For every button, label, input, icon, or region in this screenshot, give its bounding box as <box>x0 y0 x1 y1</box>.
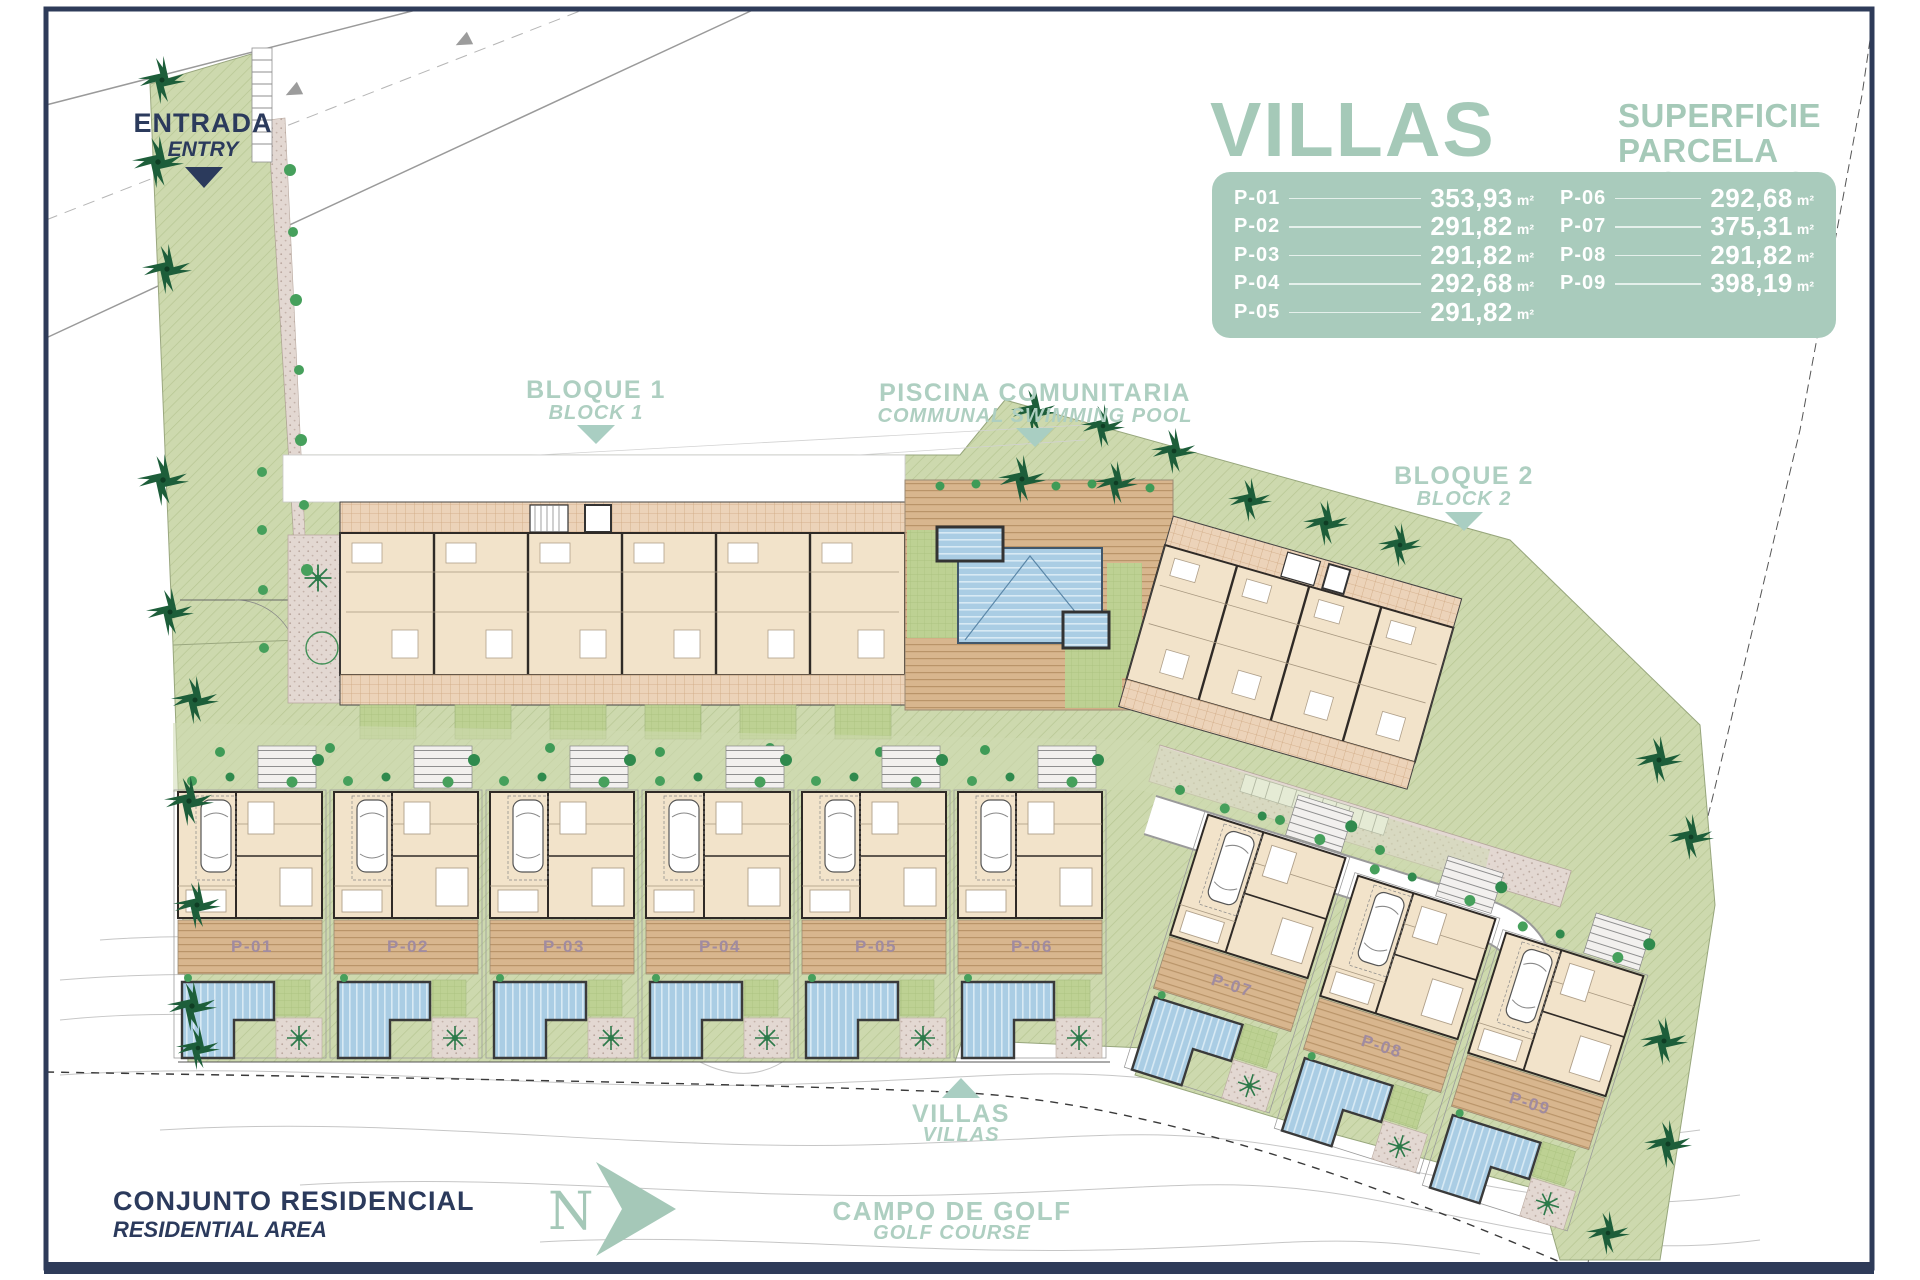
plot-area-row: P-01353,93m² <box>1234 184 1534 213</box>
leader-line <box>1615 255 1701 257</box>
plot-area-unit: m² <box>1797 188 1814 208</box>
plot-areas-col-2: P-06292,68m²P-07375,31m²P-08291,82m²P-09… <box>1560 184 1814 326</box>
plot-area-value: 291,82 <box>1710 240 1793 271</box>
plot-area-value: 353,93 <box>1430 183 1513 214</box>
plot-area-unit: m² <box>1517 302 1534 322</box>
residential-area-label-en: RESIDENTIAL AREA <box>113 1217 475 1242</box>
legend-title: VILLAS <box>1210 92 1496 169</box>
residential-area-label: CONJUNTO RESIDENCIAL RESIDENTIAL AREA <box>113 1186 475 1242</box>
north-arrow-icon <box>596 1162 676 1256</box>
plot-tag: P-03 <box>543 937 585 956</box>
plot-tag: P-01 <box>231 937 273 956</box>
plot-area-value: 291,82 <box>1430 297 1513 328</box>
plot-area-value: 292,68 <box>1430 268 1513 299</box>
small-pool-1 <box>937 527 1003 561</box>
plot-area-unit: m² <box>1797 217 1814 237</box>
block2-label-en: BLOCK 2 <box>1417 488 1512 511</box>
block1-label-es: BLOQUE 1 <box>526 376 666 405</box>
plot-area-row: P-05291,82m² <box>1234 298 1534 327</box>
plot-area-unit: m² <box>1517 274 1534 294</box>
plot-area-row: P-08291,82m² <box>1560 241 1814 270</box>
plot-area-id: P-04 <box>1234 272 1280 295</box>
leader-line <box>1289 198 1421 200</box>
plot-area-row: P-03291,82m² <box>1234 241 1534 270</box>
residential-area-label-es: CONJUNTO RESIDENCIAL <box>113 1186 475 1217</box>
plot-area-value: 291,82 <box>1430 211 1513 242</box>
site-plan-page: P-01 P-02 P-03 P-04 P-05 P-06 P-07 P-08 … <box>0 0 1920 1280</box>
small-pool-2 <box>1063 612 1109 648</box>
block2-label-es: BLOQUE 2 <box>1394 462 1534 491</box>
entry-label-en: ENTRY <box>168 138 239 162</box>
block1-pointer-icon <box>577 425 615 444</box>
plot-area-row: P-07375,31m² <box>1560 213 1814 242</box>
plot-area-value: 398,19 <box>1710 268 1793 299</box>
plot-area-row: P-02291,82m² <box>1234 213 1534 242</box>
plot-area-value: 375,31 <box>1710 211 1793 242</box>
entry-label-es: ENTRADA <box>134 108 273 139</box>
plot-area-row: P-04292,68m² <box>1234 270 1534 299</box>
plot-areas-col-1: P-01353,93m²P-02291,82m²P-03291,82m²P-04… <box>1234 184 1534 326</box>
plot-tag: P-04 <box>699 937 741 956</box>
plot-area-unit: m² <box>1517 245 1534 265</box>
block-1-building <box>283 455 905 739</box>
leader-line <box>1289 312 1421 314</box>
plot-area-unit: m² <box>1797 274 1814 294</box>
plot-tag: P-06 <box>1011 937 1053 956</box>
plot-area-row: P-09398,19m² <box>1560 270 1814 299</box>
plot-area-id: P-01 <box>1234 187 1280 210</box>
plot-tag: P-02 <box>387 937 429 956</box>
leader-line <box>1289 255 1421 257</box>
plot-area-id: P-02 <box>1234 215 1280 238</box>
plot-area-unit: m² <box>1797 245 1814 265</box>
pool-label-es: PISCINA COMUNITARIA <box>879 379 1191 408</box>
villas-label-en: VILLAS <box>922 1124 999 1147</box>
plot-area-unit: m² <box>1517 217 1534 237</box>
access-road <box>46 9 755 338</box>
plot-area-id: P-06 <box>1560 187 1606 210</box>
plot-area-id: P-03 <box>1234 244 1280 267</box>
leader-line <box>1615 283 1701 285</box>
leader-line <box>1615 226 1701 228</box>
villas-pointer-icon <box>942 1078 980 1098</box>
legend-subtitle-es: SUPERFICIE PARCELA <box>1618 99 1920 168</box>
plot-areas-table: P-01353,93m²P-02291,82m²P-03291,82m²P-04… <box>1212 172 1836 338</box>
plot-area-unit: m² <box>1517 188 1534 208</box>
plot-area-id: P-05 <box>1234 301 1280 324</box>
plot-area-value: 291,82 <box>1430 240 1513 271</box>
plot-tag: P-05 <box>855 937 897 956</box>
plot-area-id: P-08 <box>1560 244 1606 267</box>
leader-line <box>1289 283 1421 285</box>
leader-line <box>1289 226 1421 228</box>
plot-area-id: P-09 <box>1560 272 1606 295</box>
plot-area-value: 292,68 <box>1710 183 1793 214</box>
north-letter: N <box>548 1182 594 1242</box>
pool-label-en: COMMUNAL SWIMMING POOL <box>878 405 1193 428</box>
block1-label-en: BLOCK 1 <box>549 402 644 425</box>
plot-area-id: P-07 <box>1560 215 1606 238</box>
leader-line <box>1615 198 1701 200</box>
plot-area-row: P-06292,68m² <box>1560 184 1814 213</box>
golf-label-en: GOLF COURSE <box>873 1222 1031 1245</box>
